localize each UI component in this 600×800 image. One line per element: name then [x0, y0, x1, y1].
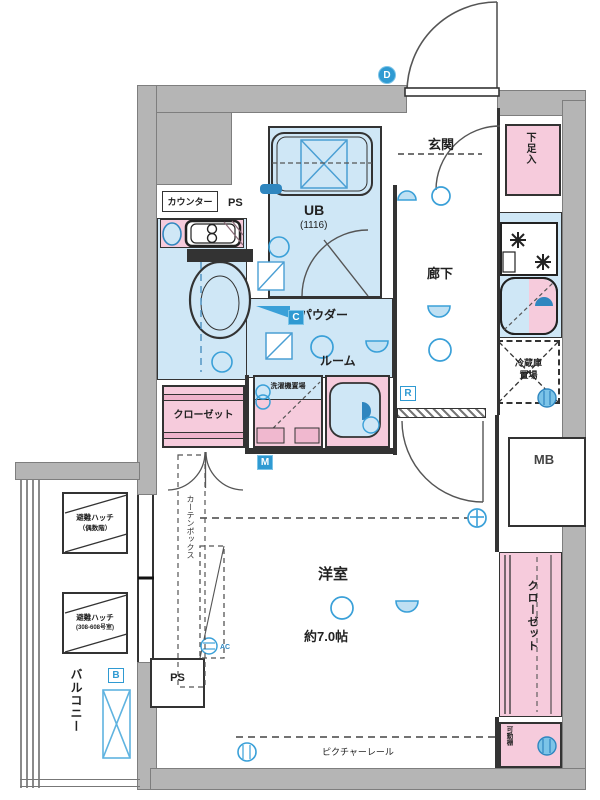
balcony-window	[137, 495, 154, 662]
hallway-downlight-icon	[428, 306, 450, 317]
marker-m: M	[257, 455, 273, 470]
room-size-label: 約7.0帖	[304, 626, 348, 645]
entrance-light-icon	[432, 187, 450, 205]
closet-left-label: クローゼット	[162, 406, 245, 421]
balcony-railing	[20, 480, 43, 788]
closet-shelf-line	[164, 394, 243, 401]
balcony-top-wall	[15, 462, 140, 480]
antenna-outlet-icon	[468, 509, 486, 527]
ac-label: AC	[220, 644, 230, 651]
wall-left	[137, 85, 157, 495]
marker-b-letter: B	[112, 670, 119, 681]
powder-label-2: ルーム	[320, 352, 356, 369]
marker-d: D	[378, 66, 396, 84]
counter-top	[160, 219, 244, 248]
wall-room-right-lower	[495, 717, 499, 768]
counter-label: カウンター	[165, 195, 215, 208]
entrance-wall-light-icon	[398, 191, 416, 200]
laundry-label: 洗濯機置場	[256, 381, 320, 391]
marker-c-letter: C	[292, 312, 299, 323]
shoe-box-label: 下足入	[522, 132, 537, 190]
vanity-box	[325, 375, 390, 448]
fridge-label-2: 置場	[497, 368, 560, 381]
bath-label: UB	[304, 202, 324, 218]
floor-plan: カウンター PS 玄関 下足入 UB (1116) 廊下 パウダー ルーム 洗濯…	[0, 0, 600, 800]
closet-shelf-line	[164, 432, 243, 439]
closet-right-label: クローゼット	[524, 580, 540, 690]
ps-top-label: PS	[228, 197, 243, 209]
curtain-box-label: カーテンボックス	[185, 495, 196, 655]
powder-label-1: パウダー	[300, 306, 348, 323]
picture-rail-label: ピクチャーレール	[322, 745, 394, 758]
marker-r: R	[400, 386, 416, 401]
room-light-icon	[331, 597, 353, 619]
wall-room-right-upper	[495, 415, 499, 552]
meter-box-label: MB	[508, 452, 580, 467]
wall-under-powder	[247, 448, 397, 454]
meter-box	[508, 437, 586, 527]
room-unit-bath	[268, 126, 382, 298]
wall-room-top	[397, 408, 486, 418]
bath-size-label: (1116)	[300, 220, 327, 231]
hallway-label: 廊下	[427, 263, 453, 282]
balcony-label: バルコニー	[68, 668, 85, 788]
front-door-leaf	[405, 88, 499, 96]
wall-bottom	[150, 768, 586, 790]
marker-m-letter: M	[261, 457, 269, 468]
marker-b: B	[108, 668, 124, 683]
movable-shelf-label: 可動棚	[503, 726, 513, 764]
closet-left-door-swing	[168, 452, 243, 490]
marker-r-letter: R	[404, 388, 411, 399]
hallway-light-icon	[429, 339, 451, 361]
hatch2-label-2: (308-608号室)	[62, 622, 128, 631]
hatch1-label-2: （偶数階）	[62, 522, 128, 532]
room-door-swing	[402, 421, 483, 502]
marker-c: C	[288, 310, 304, 325]
ac-fan-icon	[201, 638, 217, 654]
room-kitchen	[497, 212, 562, 338]
marker-d-letter: D	[383, 70, 390, 81]
ac-unit	[200, 546, 224, 658]
wall-top-band	[137, 85, 407, 113]
front-door-swing	[405, 2, 499, 96]
balcony-equipment-box	[103, 690, 130, 758]
ps-bottom-label: PS	[150, 672, 205, 684]
room-label: 洋室	[318, 563, 348, 584]
wall-laundry-left	[245, 375, 249, 454]
room-downlight-icon	[396, 601, 418, 612]
entrance-label: 玄関	[428, 134, 454, 153]
ceiling-rose-icon	[238, 743, 256, 761]
